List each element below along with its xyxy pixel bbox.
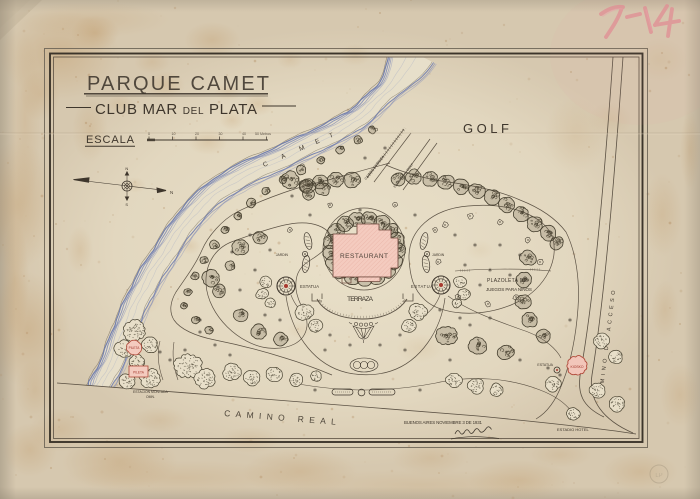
- svg-text:ESTACION MONTADA: ESTACION MONTADA: [133, 390, 168, 394]
- svg-text:S: S: [125, 202, 128, 207]
- svg-text:PILETA: PILETA: [133, 371, 145, 375]
- svg-text:JUEGOS PARA NIÑOS: JUEGOS PARA NIÑOS: [486, 286, 532, 292]
- svg-text:PLAZOLETA DE: PLAZOLETA DE: [487, 278, 528, 284]
- svg-text:ESTADIO HOTEL: ESTADIO HOTEL: [557, 427, 589, 432]
- svg-text:PARQUE CAMET: PARQUE CAMET: [87, 73, 269, 95]
- svg-text:ESCALA: ESCALA: [86, 134, 135, 146]
- svg-text:JARDIN: JARDIN: [276, 253, 289, 257]
- svg-text:ESTATUA: ESTATUA: [411, 284, 433, 289]
- svg-text:JARDIN: JARDIN: [432, 253, 445, 257]
- svg-text:N: N: [170, 190, 173, 195]
- svg-text:BUENOS AIRES NOVIEMBRE 3 DE 19: BUENOS AIRES NOVIEMBRE 3 DE 1931: [404, 420, 483, 425]
- svg-text:ESTATUA: ESTATUA: [300, 284, 319, 289]
- svg-text:ESTATUA: ESTATUA: [537, 363, 553, 367]
- svg-text:LP: LP: [655, 473, 662, 479]
- svg-text:RESTAURANT: RESTAURANT: [340, 253, 388, 260]
- svg-text:CLUB MAR DEL PLATA: CLUB MAR DEL PLATA: [95, 101, 257, 118]
- svg-text:PILETA: PILETA: [129, 346, 141, 350]
- svg-text:TERRAZA: TERRAZA: [347, 296, 373, 303]
- svg-text:OMN.: OMN.: [146, 395, 155, 399]
- svg-text:N: N: [125, 166, 128, 171]
- svg-text:KIOSKO: KIOSKO: [570, 365, 583, 369]
